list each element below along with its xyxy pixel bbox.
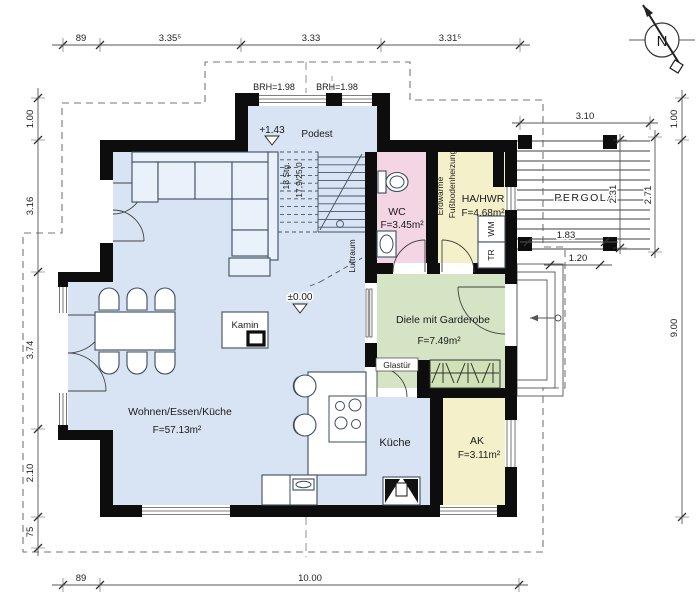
dim-left-0: 1.00	[25, 110, 36, 129]
level-ground: ±0.00	[288, 292, 313, 303]
dim-left-4: 75	[25, 527, 36, 538]
floor-plan-page: N +1.43 ±0.00 Wohnen/Essen/Küche F=57.13…	[0, 0, 700, 600]
dim-bottom-0: 89	[76, 573, 87, 584]
entrance-steps	[517, 264, 563, 396]
dryer-label: TR	[486, 249, 496, 260]
stairs-count: 18 Stg.	[281, 163, 291, 190]
entrance-arrow	[530, 315, 538, 321]
dim-pergola-h-2: 1.20	[569, 253, 588, 264]
room-label-podest: Podest	[301, 129, 332, 140]
meter-box	[493, 149, 504, 187]
stairs-ratio: 17,9/25,0	[294, 162, 304, 198]
dishwasher-symbol	[383, 477, 420, 505]
util-heating-1: Erdwärme	[435, 176, 445, 215]
dimension-right	[613, 90, 689, 524]
kitchen-island	[308, 372, 366, 475]
dim-left-2: 3.74	[25, 341, 36, 360]
dim-right-1: 9.00	[669, 319, 680, 338]
room-label-living: Wohnen/Essen/Küche	[128, 406, 232, 418]
room-label-util: HA/HWR	[462, 193, 505, 205]
room-area-util: F=4.68m²	[461, 208, 505, 219]
dim-pergola-v-1: 2.31	[608, 185, 619, 204]
wardrobe	[430, 360, 500, 388]
room-area-hall: F=7.49m²	[417, 336, 461, 347]
room-area-ak: F=3.11m²	[458, 450, 501, 461]
floor-plan-drawing: N +1.43 ±0.00 Wohnen/Essen/Küche F=57.13…	[0, 0, 700, 600]
toilet-tank	[378, 171, 386, 193]
pergola-post	[603, 237, 617, 251]
stool	[294, 375, 316, 397]
room-label-kitchen: Küche	[379, 437, 410, 449]
room-label-hall: Diele mit Garderobe	[396, 314, 490, 326]
luftraum-label: Luftraum	[347, 239, 357, 273]
room-area-living: F=57.13m²	[153, 425, 202, 436]
window-brh-left: BRH=1.98	[253, 82, 295, 92]
dining-table	[95, 288, 175, 374]
dim-pergola-h-0: 3.10	[576, 111, 595, 122]
dim-bottom-1: 10.00	[298, 573, 322, 584]
dim-pergola-h-1: 1.83	[557, 230, 576, 241]
stool	[294, 414, 316, 436]
room-label-ak: AK	[470, 435, 484, 447]
room-area-wc: F=3.45m²	[380, 220, 424, 231]
compass-label: N	[657, 33, 668, 50]
dim-left-1: 3.16	[25, 197, 36, 216]
fireplace-label: Kamin	[232, 320, 259, 331]
dim-top-3: 3.31⁵	[439, 33, 461, 44]
level-podest: +1.43	[259, 125, 285, 136]
toilet-bowl	[386, 173, 408, 192]
glass-door-tag: Glastür	[376, 358, 418, 371]
compass: N	[629, 5, 695, 73]
pergola-label: PERGOLA	[554, 192, 615, 204]
dim-pergola-v-0: 2.71	[643, 186, 654, 205]
pergola-post	[518, 237, 532, 251]
glass-door-leaf	[366, 289, 372, 337]
pergola-post	[518, 135, 532, 149]
dim-right-0: 1.00	[669, 110, 680, 129]
glass-door-label: Glastür	[383, 360, 411, 370]
compass-needle-tail	[670, 60, 683, 73]
compass-needle-tip	[643, 5, 653, 17]
room-label-wc: WC	[388, 206, 406, 218]
dimension-left	[31, 88, 45, 556]
dim-left-3: 2.10	[25, 464, 36, 483]
dimension-bottom	[52, 578, 528, 592]
dim-top-0: 89	[76, 33, 87, 44]
util-heating-2: Fußbodenheizung	[447, 149, 457, 218]
pergola-post	[603, 135, 617, 149]
dim-top-1: 3.35⁵	[159, 33, 181, 44]
dim-top-2: 3.33	[302, 33, 321, 44]
window-brh-right: BRH=1.98	[316, 82, 358, 92]
washer-label: WM	[486, 221, 496, 236]
